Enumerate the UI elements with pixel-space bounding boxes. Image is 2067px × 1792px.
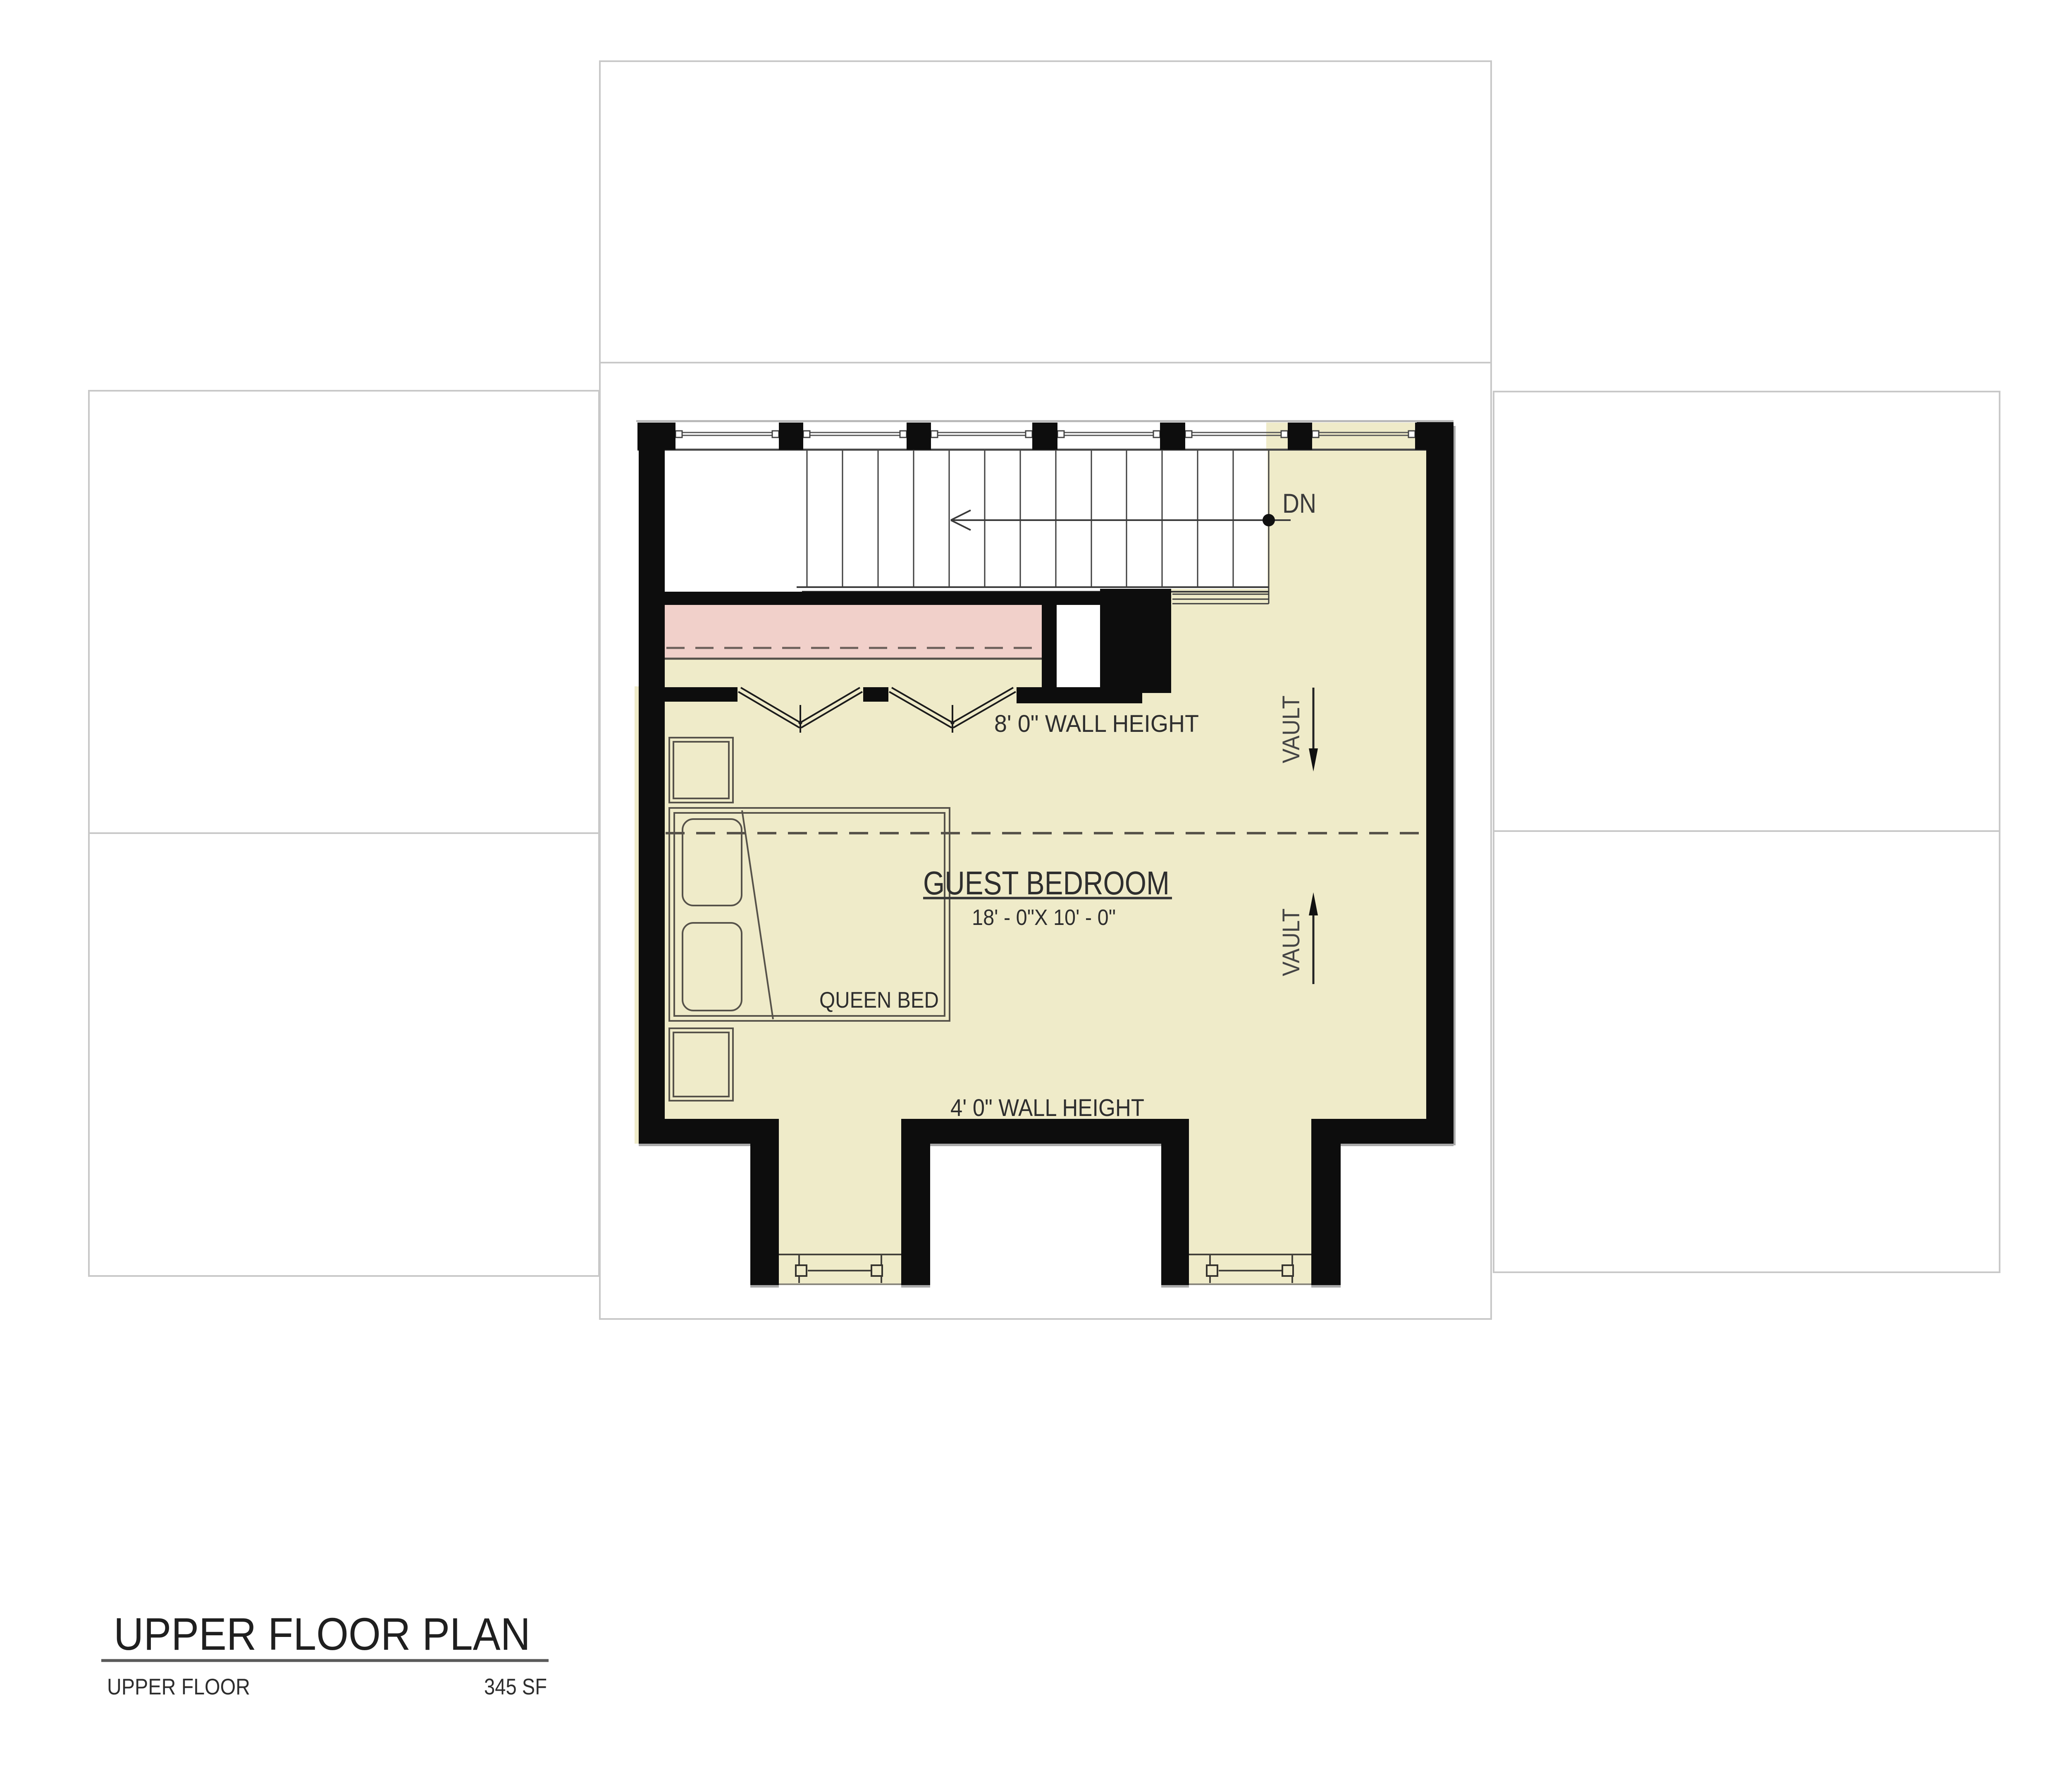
svg-text:GUEST BEDROOM: GUEST BEDROOM xyxy=(923,865,1170,901)
svg-text:8' 0" WALL HEIGHT: 8' 0" WALL HEIGHT xyxy=(994,710,1199,737)
svg-text:VAULT: VAULT xyxy=(1278,695,1305,763)
svg-text:18' - 0"X 10' - 0": 18' - 0"X 10' - 0" xyxy=(972,905,1116,930)
svg-text:UPPER FLOOR PLAN: UPPER FLOOR PLAN xyxy=(114,1609,530,1660)
svg-text:UPPER FLOOR: UPPER FLOOR xyxy=(107,1674,250,1699)
svg-text:VAULT: VAULT xyxy=(1278,908,1305,976)
svg-text:4' 0" WALL HEIGHT: 4' 0" WALL HEIGHT xyxy=(950,1094,1144,1121)
svg-text:DN: DN xyxy=(1282,488,1316,518)
svg-text:QUEEN BED: QUEEN BED xyxy=(819,987,939,1013)
svg-text:345 SF: 345 SF xyxy=(484,1674,547,1699)
